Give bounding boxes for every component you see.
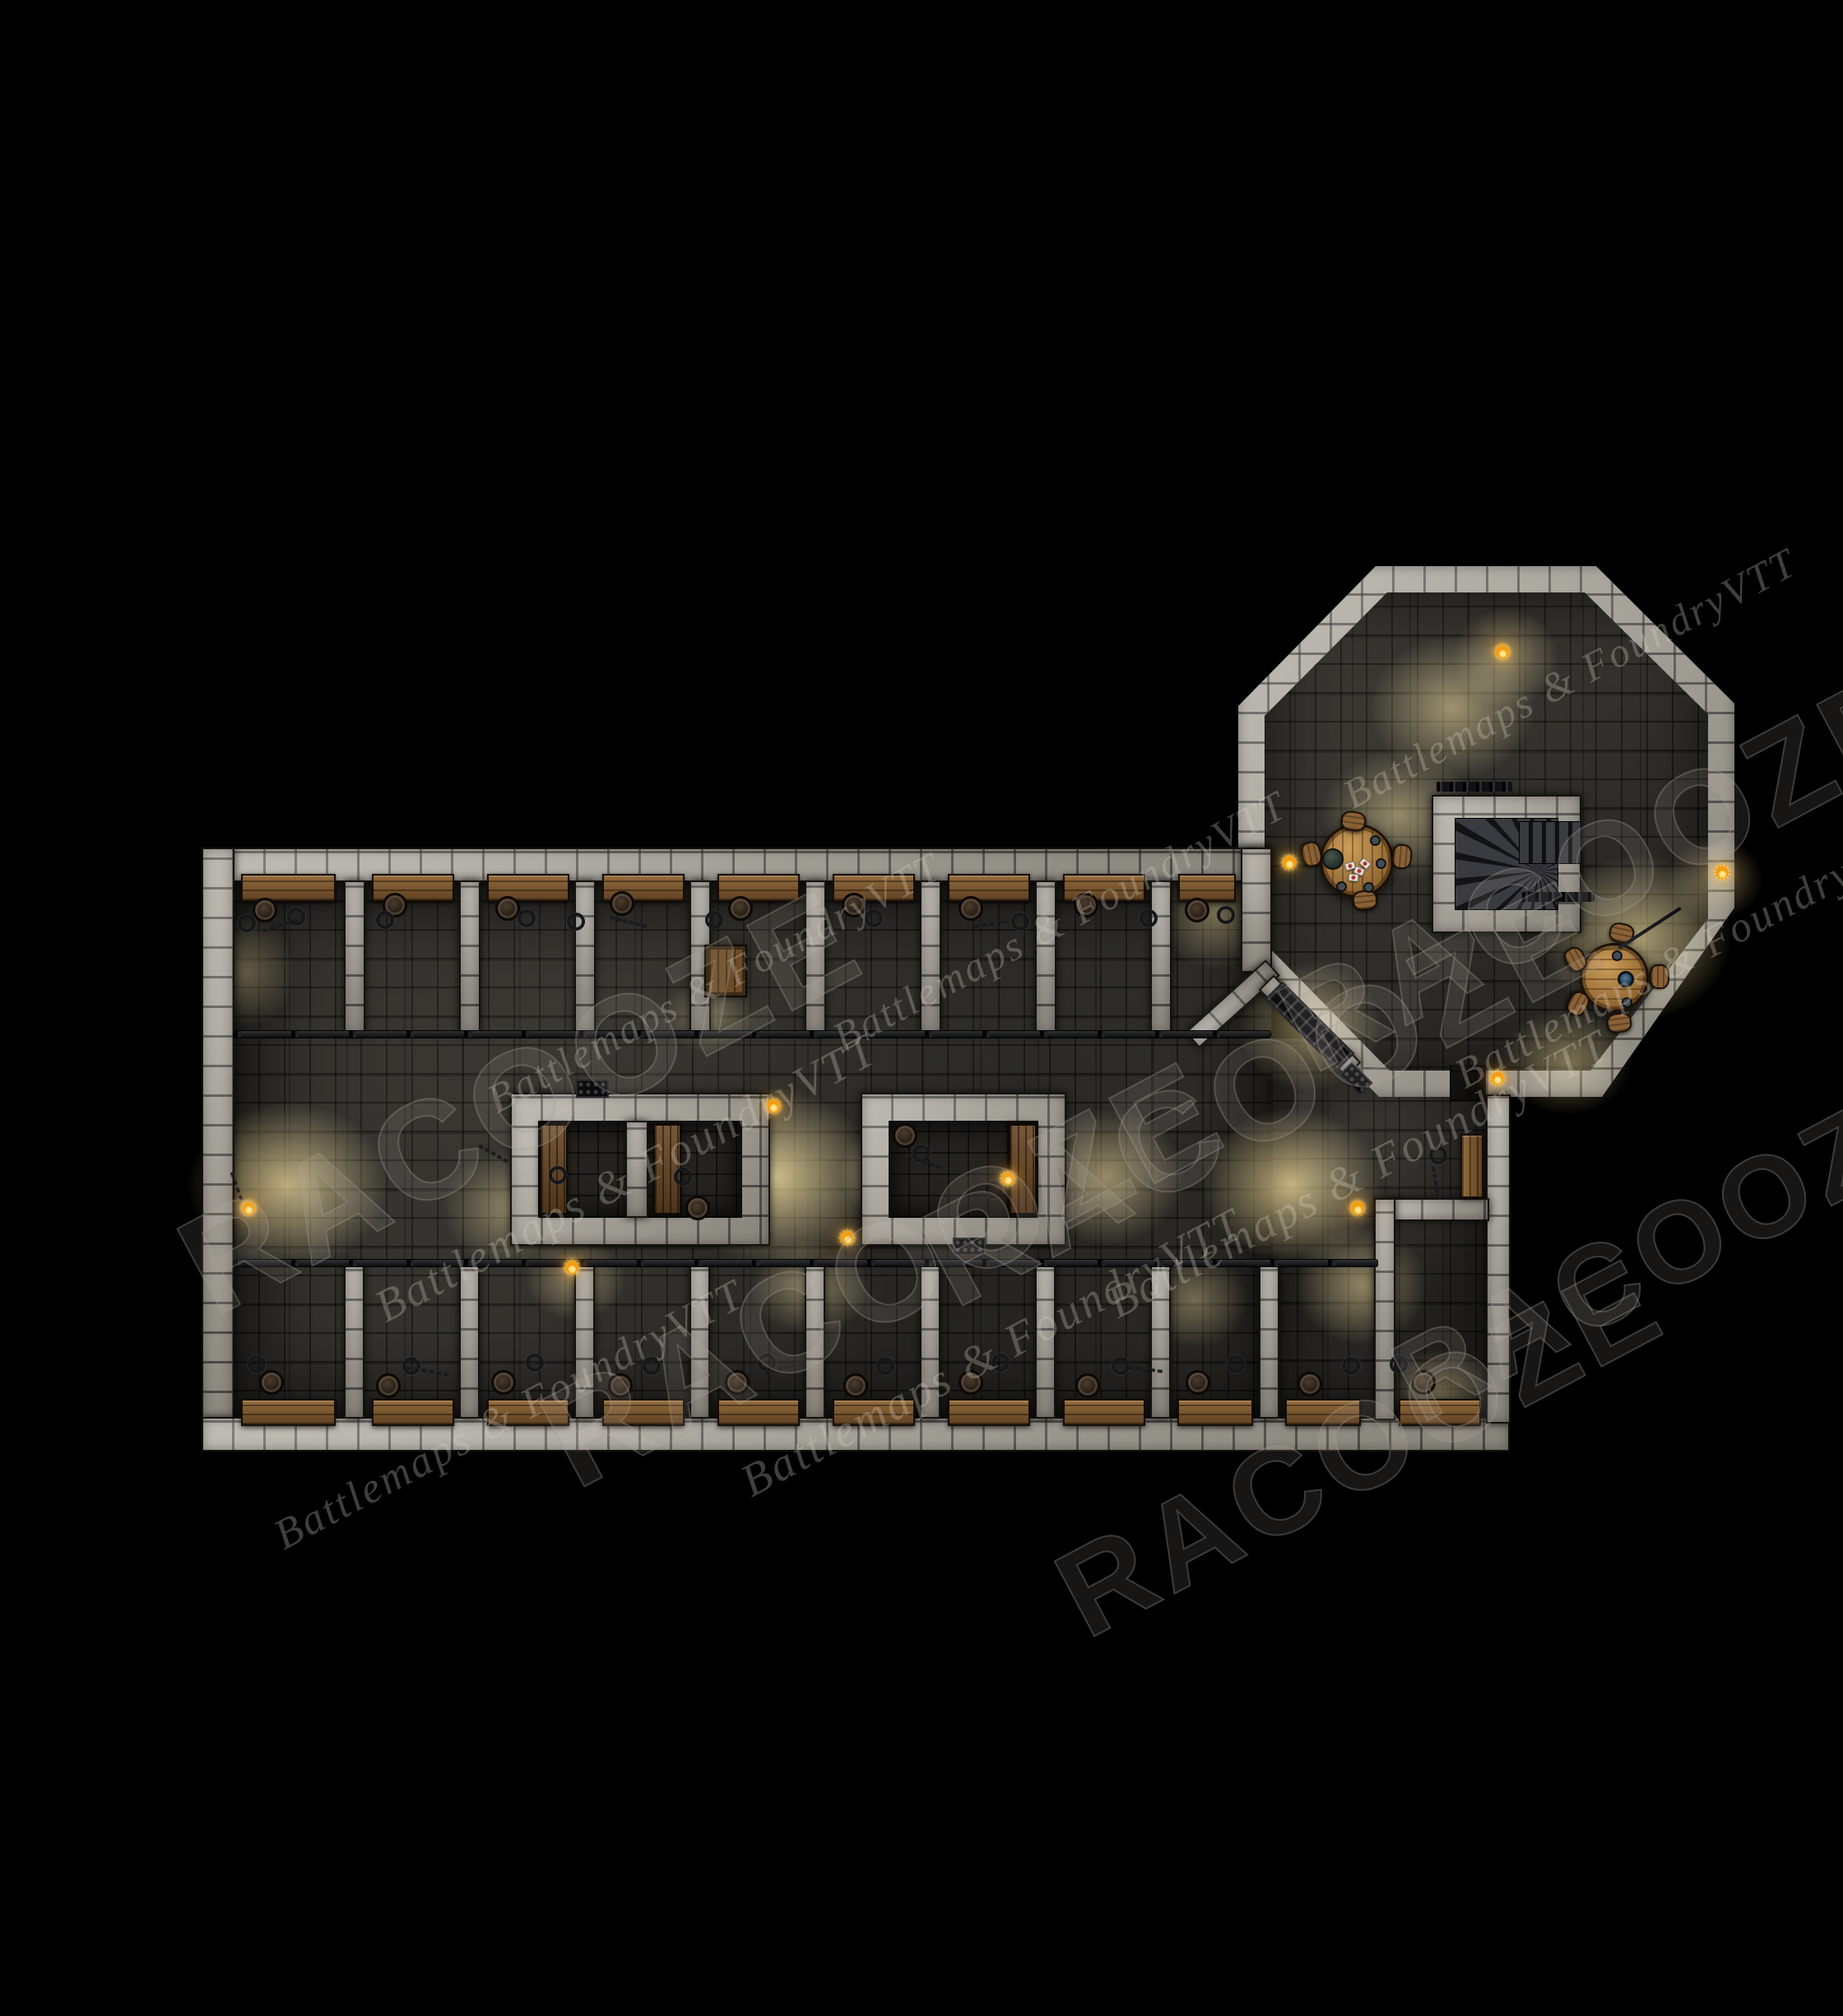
torch-flame-icon <box>832 1224 863 1255</box>
shackle-ring <box>991 1354 1010 1372</box>
wooden-bench <box>241 874 336 902</box>
mug <box>1363 882 1374 893</box>
stone-wall <box>1486 1094 1511 1424</box>
torch-flame-icon <box>233 1194 264 1225</box>
wooden-bench <box>1178 874 1236 902</box>
teapot <box>1322 848 1344 870</box>
bucket <box>376 1373 401 1398</box>
stone-wall <box>202 848 234 1452</box>
shackle-ring <box>518 909 536 927</box>
bucket <box>1074 893 1098 917</box>
cell-pillar <box>459 880 480 1035</box>
wooden-bench <box>602 1399 685 1426</box>
wooden-bench <box>1399 1399 1481 1426</box>
shackle-ring <box>1227 1355 1245 1373</box>
shackle-ring <box>643 1357 661 1375</box>
shackle-ring <box>1011 913 1029 931</box>
wooden-bench <box>241 1399 336 1426</box>
torch-flame-icon <box>1706 858 1738 890</box>
goblet <box>1618 971 1634 987</box>
torch-flame-icon <box>1274 848 1305 880</box>
cell-pillar <box>574 1262 595 1419</box>
shackle-ring <box>567 913 585 931</box>
stair-railing <box>1437 782 1512 792</box>
stone-wall <box>1374 1198 1395 1420</box>
mug <box>1370 835 1381 846</box>
bucket <box>253 898 277 922</box>
mug <box>1622 997 1632 1008</box>
wooden-bench <box>948 1399 1030 1426</box>
cell-pillar <box>344 1262 364 1419</box>
shackle-ring <box>376 911 394 929</box>
cell-pillar <box>1150 1262 1171 1419</box>
bucket <box>959 896 983 921</box>
dungeon-battlemap-canvas: RACOOZEBattlemaps & FoundryVTTRACOOZEBat… <box>0 0 1843 2016</box>
stone-wall <box>1390 1198 1489 1221</box>
iron-rail <box>233 1259 1378 1267</box>
cell-pillar <box>1035 880 1056 1035</box>
wooden-bench <box>487 874 569 902</box>
mug <box>1612 950 1622 961</box>
bucket <box>842 893 866 917</box>
cell-pillar <box>689 1262 710 1419</box>
wooden-bench <box>948 874 1030 902</box>
bucket <box>1075 1373 1100 1398</box>
iron-rail <box>233 1030 1271 1038</box>
cell-pillar <box>344 880 365 1035</box>
cell-pillar <box>1150 880 1172 1035</box>
bucket <box>725 1370 750 1395</box>
wooden-bench <box>1460 1134 1483 1198</box>
cell-pillar <box>805 1262 825 1419</box>
cell-pillar <box>1259 1262 1279 1419</box>
wooden-bench <box>372 1399 454 1426</box>
bucket <box>491 1370 516 1395</box>
wooden-bench <box>1063 1399 1145 1426</box>
bucket <box>259 1370 284 1395</box>
shackle-ring <box>1390 1355 1408 1373</box>
stair-steps <box>1519 821 1581 864</box>
trapdoor <box>706 946 745 996</box>
solitary-cell-divider <box>625 1121 648 1218</box>
bucket <box>1298 1372 1322 1396</box>
stair-railing <box>1522 892 1595 902</box>
shackle-ring <box>1429 1146 1447 1164</box>
bucket <box>495 896 520 921</box>
torch-flame-icon <box>1482 1064 1513 1095</box>
mug <box>1336 881 1347 892</box>
torch-flame-icon <box>556 1253 587 1284</box>
bucket <box>685 1196 710 1220</box>
shackle-ring <box>238 914 256 932</box>
wooden-bench <box>1177 1399 1253 1426</box>
octagon-door-opening <box>1450 1065 1486 1101</box>
playing-card <box>1349 873 1359 881</box>
shackle-ring <box>865 909 883 927</box>
cell-pillar <box>459 1262 480 1419</box>
shackle-ring <box>248 1355 266 1373</box>
bucket <box>1185 898 1209 922</box>
cell-pillar <box>574 880 596 1035</box>
torch-flame-icon <box>1342 1194 1373 1225</box>
vent-grate <box>576 1080 609 1098</box>
bucket <box>610 891 634 916</box>
bucket <box>893 1123 917 1148</box>
shackle-ring <box>876 1357 894 1375</box>
wooden-bench <box>717 1399 800 1426</box>
shackle-ring <box>549 1166 567 1184</box>
mug <box>1376 858 1386 869</box>
wooden-bench <box>717 874 800 902</box>
wooden-bench <box>487 1399 569 1426</box>
shackle-ring <box>1342 1357 1360 1375</box>
bucket <box>1186 1370 1210 1395</box>
wooden-bench <box>833 1399 915 1426</box>
cell-pillar <box>805 880 826 1035</box>
torch-flame-icon <box>1487 638 1518 669</box>
shackle-ring <box>705 911 723 929</box>
shackle-ring <box>674 1168 692 1186</box>
bucket <box>1411 1370 1436 1395</box>
torch-flame-icon <box>992 1164 1024 1196</box>
bucket <box>608 1373 633 1398</box>
shackle-ring <box>287 908 305 926</box>
cell-pillar <box>920 880 941 1035</box>
bucket <box>728 896 753 921</box>
stone-wall <box>1241 848 1272 973</box>
stool <box>1650 964 1669 989</box>
bucket <box>959 1370 983 1395</box>
shackle-ring <box>1112 1357 1130 1375</box>
vent-grate <box>953 1238 986 1256</box>
cell-pillar <box>1035 1262 1056 1419</box>
shackle-ring <box>1217 906 1235 924</box>
shackle-ring <box>1140 909 1158 927</box>
torch-flame-icon <box>758 1092 789 1123</box>
cell-pillar <box>920 1262 940 1419</box>
shackle-ring <box>526 1354 544 1372</box>
wooden-bench <box>1285 1399 1361 1426</box>
bucket <box>843 1373 868 1398</box>
